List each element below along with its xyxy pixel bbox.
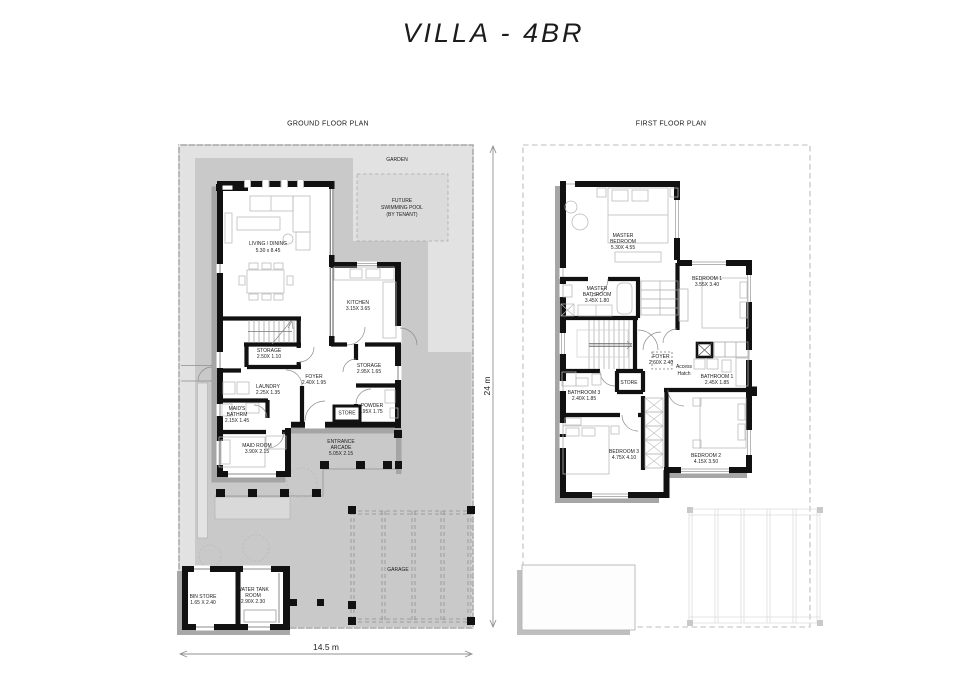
svg-text:Hatch: Hatch [677,371,690,377]
svg-text:4.15X 3.50: 4.15X 3.50 [694,459,718,465]
svg-text:GROUND FLOOR PLAN: GROUND FLOOR PLAN [287,121,369,128]
svg-text:2.40X 1.85: 2.40X 1.85 [572,396,596,402]
svg-text:2.90X 2.30: 2.90X 2.30 [241,599,265,605]
svg-text:LIVING / DINING: LIVING / DINING [249,241,287,247]
svg-text:5.30X 4.55: 5.30X 4.55 [611,245,635,251]
svg-text:1.65 X 2.40: 1.65 X 2.40 [190,600,216,606]
svg-text:3.15X 3.65: 3.15X 3.65 [346,306,370,312]
svg-text:STORE: STORE [338,411,356,417]
svg-text:2.95X 1.65: 2.95X 1.65 [357,369,381,375]
svg-text:2.40X 1.95: 2.40X 1.95 [302,380,326,386]
svg-text:GARDEN: GARDEN [386,157,408,163]
svg-text:VILLA - 4BR: VILLA - 4BR [402,18,584,48]
svg-text:FIRST FLOOR PLAN: FIRST FLOOR PLAN [636,121,706,128]
svg-text:14.5 m: 14.5 m [313,642,339,652]
svg-text:5.30 x 8.45: 5.30 x 8.45 [256,248,281,254]
svg-text:4.75X 4.10: 4.75X 4.10 [612,455,636,461]
svg-text:2.60X 2.40: 2.60X 2.40 [649,360,673,366]
svg-text:3.90X 2.15: 3.90X 2.15 [245,449,269,455]
svg-text:.95X 1.75: .95X 1.75 [361,409,383,415]
svg-text:2.50X 1.10: 2.50X 1.10 [257,354,281,360]
svg-text:5.05X 2.15: 5.05X 2.15 [329,451,353,457]
svg-text:FUTURE: FUTURE [392,198,413,204]
svg-text:GARAGE: GARAGE [387,567,409,573]
svg-text:2.25X 1.35: 2.25X 1.35 [256,390,280,396]
svg-text:24 m: 24 m [482,377,492,396]
svg-text:3.55X 3.40: 3.55X 3.40 [695,282,719,288]
svg-text:STORE: STORE [620,380,638,386]
svg-text:2.45X 1.85: 2.45X 1.85 [705,380,729,386]
svg-text:(BY TENANT): (BY TENANT) [386,212,418,218]
svg-text:2.15X 1.45: 2.15X 1.45 [225,418,249,424]
svg-text:SWIMMING POOL: SWIMMING POOL [381,205,423,211]
svg-text:Access: Access [676,364,693,370]
svg-text:3.45X 1.80: 3.45X 1.80 [585,298,609,304]
